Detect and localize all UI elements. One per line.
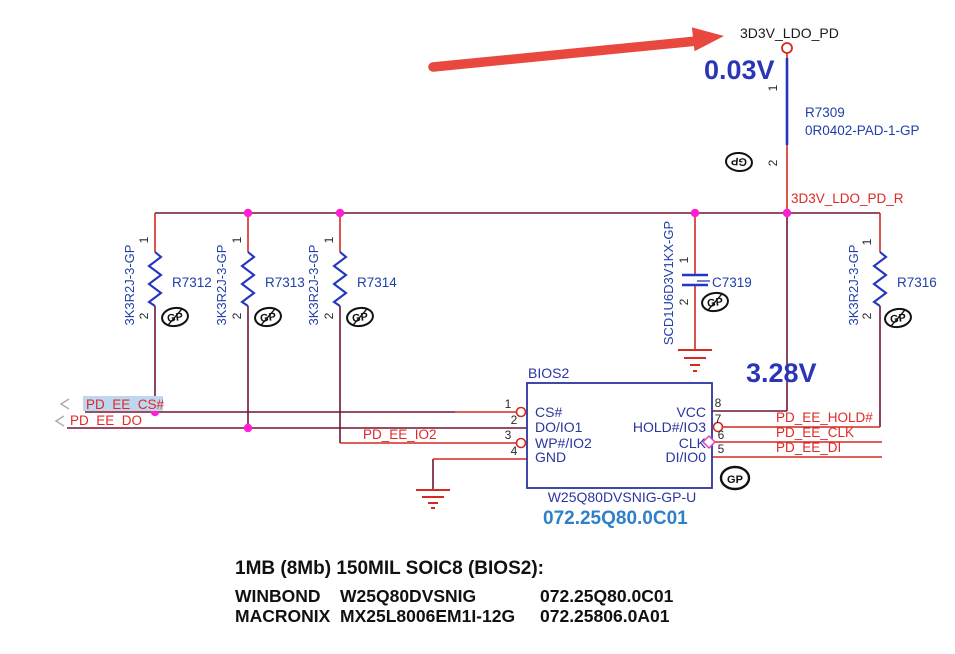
net-labels: PD_EE_CS# PD_EE_DO PD_EE_IO2 PD_EE_HOLD#… [70,397,873,455]
r7314-part: 3K3R2J-3-GP [306,245,321,326]
notes-title: 1MB (8Mb) 150MIL SOIC8 (BIOS2): [235,558,544,579]
bios-notes: 1MB (8Mb) 150MIL SOIC8 (BIOS2): WINBOND … [235,558,674,626]
notes-row-part: MX25L8006EM1I-12G [340,606,515,626]
chip-pin-name-vcc: VCC [676,404,706,420]
chip-internal-pn: 072.25Q80.0C01 [543,508,688,529]
notes-row-part: W25Q80DVSNIG [340,586,476,606]
chip-pin-name-cs: CS# [535,404,562,420]
r7312-ref: R7312 [172,275,212,290]
c7319-ref: C7319 [712,275,752,290]
chip-pin-name-gnd: GND [535,449,566,465]
c7319-pin2-number: 2 [677,298,691,305]
chip-pin-name-do: DO/IO1 [535,419,583,435]
schematic-canvas: 3D3V_LDO_PD 0.03V 1 2 R7309 0R0402-PAD-1… [0,0,955,654]
r7314-ref: R7314 [357,275,397,290]
junction-dot [783,209,791,217]
r7312-part: 3K3R2J-3-GP [122,245,137,326]
junction-dot [336,209,344,217]
junction-dot [244,209,252,217]
junction-dot [244,424,252,432]
gp-marker-icon: GP [727,474,743,486]
gp-marker-chip: GP [721,467,749,489]
offpage-chevron-icon [61,399,69,409]
net-label-3d3v-ldo-pd-r: 3D3V_LDO_PD_R [791,191,904,206]
resistor-r7316-zigzag [874,252,886,306]
notes-row-vendor: WINBOND [235,586,321,606]
net-label-pd-ee-di: PD_EE_DI [776,440,841,455]
offpage-chevrons [56,399,69,426]
gp-marker-r7313: GP [254,306,282,327]
r7313-part: 3K3R2J-3-GP [214,245,229,326]
net-label-pd-ee-cs: PD_EE_CS# [86,397,165,412]
ground-c7319 [678,350,712,371]
ground-chip [416,490,450,508]
chip-designator: BIOS2 [528,365,569,381]
resistor-labels: 3K3R2J-3-GP 1 2 R7312 3K3R2J-3-GP 1 2 R7… [122,236,937,325]
junction-dot [691,209,699,217]
r7309-pin2-number: 2 [766,159,780,166]
resistor-r7312-zigzag [149,252,161,306]
r7312-pin1-number: 1 [137,236,151,243]
net-label-3d3v-ldo-pd: 3D3V_LDO_PD [740,25,839,41]
chip-pin-number-1: 1 [505,397,512,411]
component-symbols [149,58,886,306]
chip-pin-number-3: 3 [505,428,512,442]
c7319-pin1-number: 1 [677,256,691,263]
offpage-chevron-icon [56,416,64,426]
c7319-part: SCD1U6D3V1KX-GP [661,221,676,345]
r7313-ref: R7313 [265,275,305,290]
chip-pin-number-6: 6 [718,428,725,442]
resistor-r7314-zigzag [334,252,346,306]
chip-pin-number-7: 7 [715,412,722,426]
gp-marker-icon: GP [731,154,748,167]
notes-row-pn: 072.25806.0A01 [540,606,670,626]
r7316-pin2-number: 2 [860,312,874,319]
voltage-probe-top: 0.03V [704,55,775,85]
r7312-pin2-number: 2 [137,312,151,319]
r7316-ref: R7316 [897,275,937,290]
chip-pin-name-di: DI/IO0 [666,449,707,465]
chip-pin-number-5: 5 [718,442,725,456]
chip-part-number: W25Q80DVSNIG-GP-U [548,489,697,505]
pin3-invert-bubble [517,439,526,448]
open-terminal [782,43,792,53]
r7309-ref: R7309 [805,105,845,120]
r7313-pin2-number: 2 [230,312,244,319]
net-label-pd-ee-hold: PD_EE_HOLD# [776,410,873,425]
net-label-pd-ee-do: PD_EE_DO [70,413,142,428]
gp-marker-r7316: GP [884,307,912,328]
gp-marker-c7319: GP [701,291,729,312]
chip-pin-number-8: 8 [715,396,722,410]
r7316-part: 3K3R2J-3-GP [846,245,861,326]
notes-row-pn: 072.25Q80.0C01 [540,586,674,606]
chip-pin-number-2: 2 [511,413,518,427]
r7309-pin1-number: 1 [766,84,780,91]
r7314-pin1-number: 1 [322,236,336,243]
r7309-part: 0R0402-PAD-1-GP [805,123,920,138]
wires-maroon [67,213,880,489]
r7316-pin1-number: 1 [860,238,874,245]
notes-row-vendor: MACRONIX [235,606,331,626]
r7313-pin1-number: 1 [230,236,244,243]
wires-red [155,53,882,459]
schematic-svg: 3D3V_LDO_PD 0.03V 1 2 R7309 0R0402-PAD-1… [0,0,955,654]
net-label-pd-ee-clk: PD_EE_CLK [776,425,854,440]
resistor-r7313-zigzag [242,252,254,306]
pin1-invert-bubble [517,408,526,417]
chip-pin-name-hold: HOLD#/IO3 [633,419,706,435]
voltage-probe-vcc: 3.28V [746,358,817,388]
chip-pin-number-4: 4 [511,444,518,458]
capacitor-labels: SCD1U6D3V1KX-GP 1 2 C7319 [661,221,752,345]
gp-marker-r7314: GP [346,306,374,327]
net-label-pd-ee-io2: PD_EE_IO2 [363,427,437,442]
r7314-pin2-number: 2 [322,312,336,319]
gp-marker-r7309: GP [725,152,752,172]
gp-marker-r7312: GP [161,306,189,327]
annotation-arrow-icon [433,27,724,67]
